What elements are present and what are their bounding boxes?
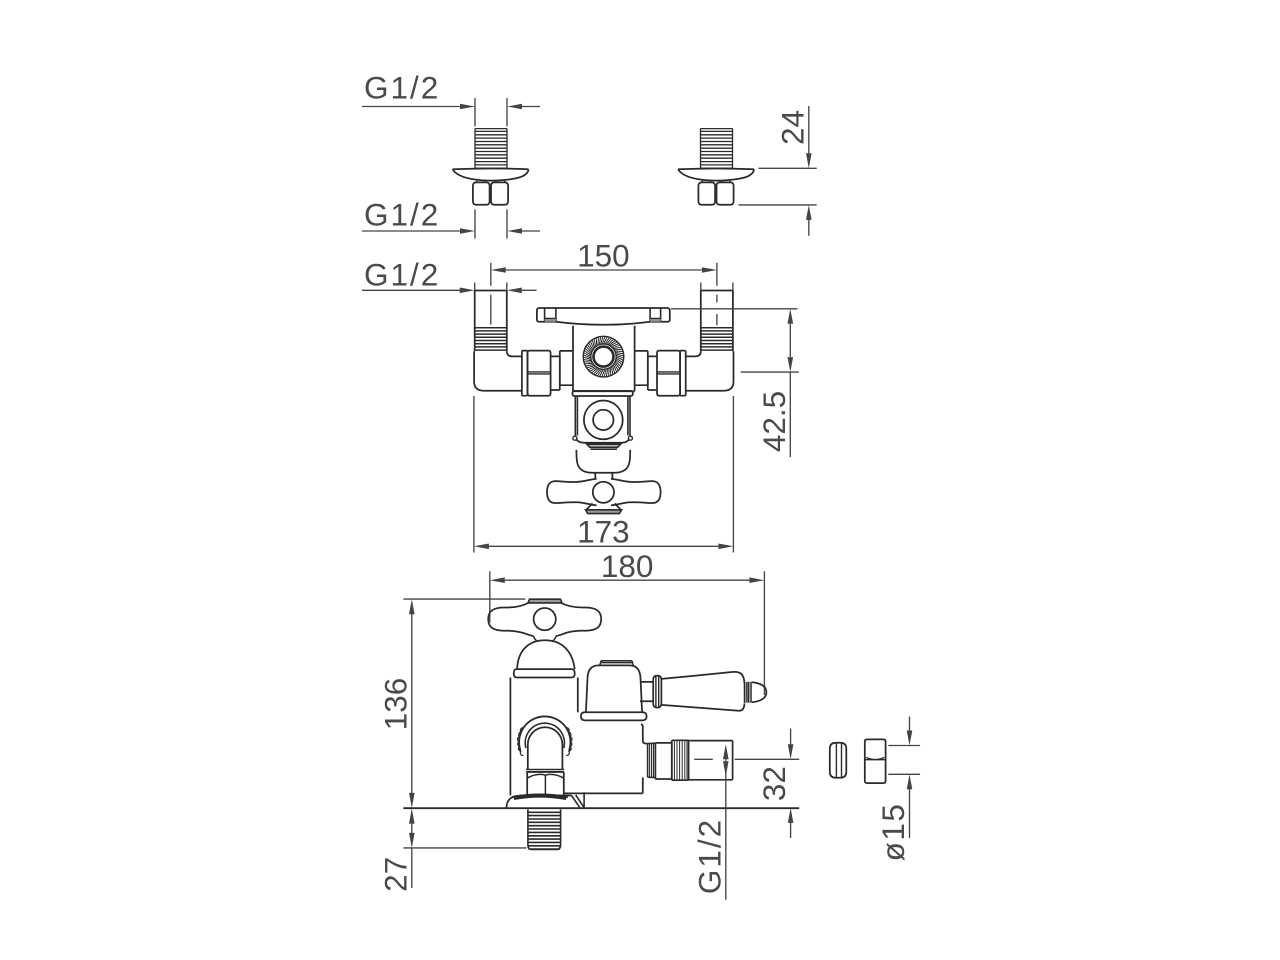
svg-text:173: 173 — [577, 513, 630, 549]
svg-text:G1/2: G1/2 — [364, 256, 440, 292]
svg-text:42.5: 42.5 — [756, 391, 792, 452]
svg-text:150: 150 — [577, 237, 630, 273]
svg-text:180: 180 — [601, 548, 654, 584]
svg-text:136: 136 — [378, 678, 414, 731]
svg-text:G1/2: G1/2 — [364, 197, 440, 233]
svg-text:24: 24 — [775, 110, 811, 145]
svg-text:ø15: ø15 — [875, 803, 911, 862]
svg-text:G1/2: G1/2 — [691, 818, 727, 894]
svg-text:27: 27 — [378, 857, 414, 892]
svg-text:32: 32 — [756, 766, 792, 801]
svg-text:G1/2: G1/2 — [364, 70, 440, 106]
